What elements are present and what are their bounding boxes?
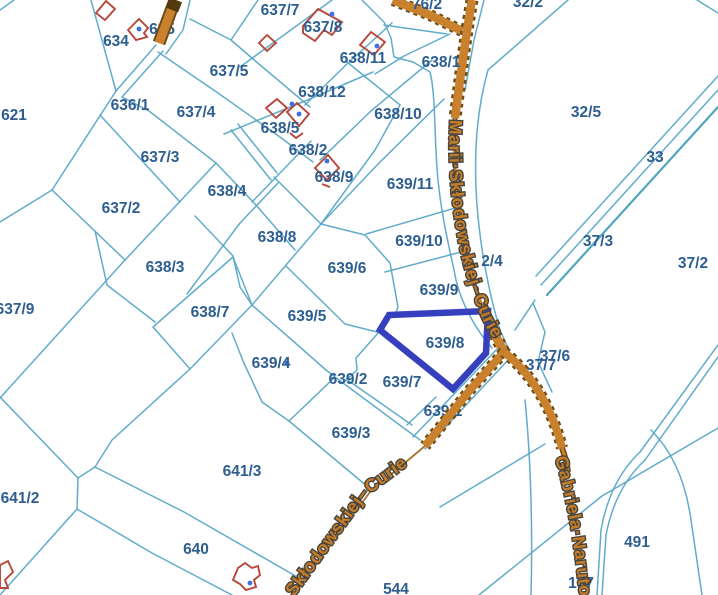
svg-text:637/5: 637/5 (210, 63, 249, 80)
svg-text:32/5: 32/5 (571, 104, 602, 121)
svg-text:37/3: 37/3 (583, 233, 614, 250)
svg-text:639/11: 639/11 (387, 176, 434, 193)
svg-text:37/6: 37/6 (540, 348, 571, 365)
svg-text:638/5: 638/5 (261, 120, 300, 137)
svg-text:639/4: 639/4 (252, 355, 291, 372)
svg-text:638/7: 638/7 (191, 304, 230, 321)
svg-text:639/3: 639/3 (332, 425, 371, 442)
svg-text:637/9: 637/9 (0, 301, 35, 318)
svg-text:638/9: 638/9 (315, 169, 354, 186)
svg-text:641/2: 641/2 (1, 490, 40, 507)
svg-text:639/2: 639/2 (329, 371, 368, 388)
svg-text:638/1: 638/1 (422, 54, 461, 71)
svg-text:639/8: 639/8 (426, 335, 465, 352)
svg-text:637/8: 637/8 (304, 19, 343, 36)
svg-text:638/4: 638/4 (208, 183, 247, 200)
svg-text:76/2: 76/2 (412, 0, 442, 13)
svg-text:544: 544 (383, 581, 409, 595)
svg-text:639/9: 639/9 (420, 282, 459, 299)
svg-text:638/11: 638/11 (340, 50, 387, 67)
svg-text:33: 33 (646, 149, 664, 166)
svg-text:638/3: 638/3 (146, 259, 185, 276)
svg-text:2/4: 2/4 (481, 253, 503, 270)
svg-text:639/10: 639/10 (395, 233, 442, 250)
svg-text:639/5: 639/5 (288, 308, 327, 325)
svg-text:638/12: 638/12 (298, 84, 345, 101)
svg-text:637/4: 637/4 (177, 104, 216, 121)
svg-text:634: 634 (103, 33, 129, 50)
svg-text:641/3: 641/3 (223, 463, 262, 480)
svg-text:638/8: 638/8 (258, 229, 297, 246)
svg-text:638/2: 638/2 (289, 142, 328, 159)
svg-text:637/2: 637/2 (102, 200, 141, 217)
svg-text:640: 640 (183, 541, 209, 558)
svg-text:639/6: 639/6 (328, 260, 367, 277)
svg-text:37/2: 37/2 (678, 255, 708, 272)
svg-text:639/7: 639/7 (383, 374, 422, 391)
svg-text:638/10: 638/10 (374, 106, 421, 123)
svg-text:637/7: 637/7 (261, 2, 300, 19)
svg-text:32/2: 32/2 (513, 0, 543, 11)
svg-text:636/1: 636/1 (111, 97, 150, 114)
svg-text:491: 491 (624, 534, 650, 551)
svg-text:637/3: 637/3 (141, 149, 180, 166)
svg-text:621: 621 (1, 107, 27, 124)
